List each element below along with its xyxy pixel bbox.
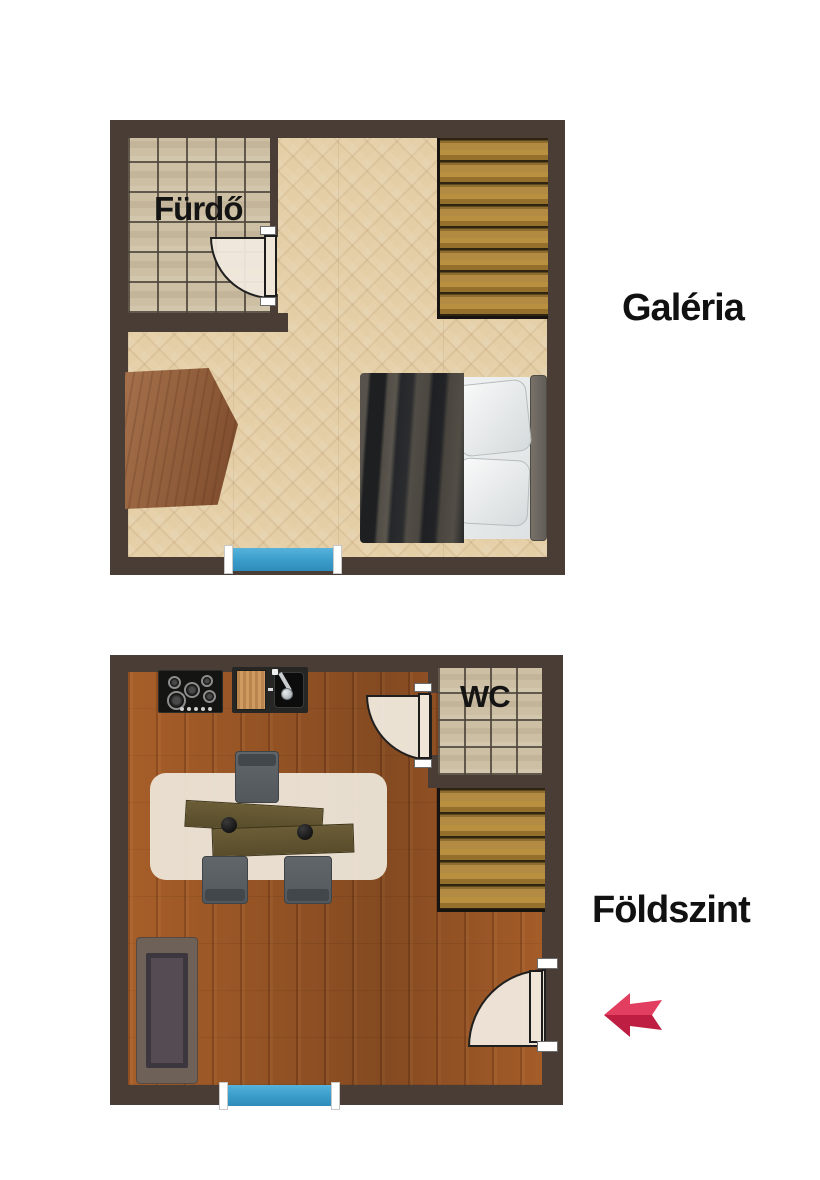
office-chair-bottom-right bbox=[284, 856, 332, 904]
double-bed bbox=[360, 373, 547, 545]
window-lower-frame-right bbox=[331, 1082, 340, 1110]
burner-icon bbox=[203, 690, 216, 703]
wc-door-hinge-bottom bbox=[414, 759, 432, 768]
faucet-head-icon bbox=[281, 688, 293, 700]
wc-door-hinge-top bbox=[414, 683, 432, 692]
bathroom-door-hinge-top bbox=[260, 226, 276, 235]
window-lower bbox=[227, 1085, 332, 1106]
chair-backrest bbox=[287, 889, 329, 901]
entry-arrow-icon bbox=[602, 990, 664, 1040]
office-chair-top bbox=[235, 751, 279, 803]
bed-blanket bbox=[360, 373, 464, 543]
kitchen-sink-unit bbox=[232, 667, 308, 713]
galeria-floor-label: Galéria bbox=[622, 287, 744, 330]
hob-knob-icon bbox=[187, 707, 191, 711]
hob-knob-icon bbox=[194, 707, 198, 711]
hob-knob-icon bbox=[201, 707, 205, 711]
sofa bbox=[136, 937, 198, 1084]
staircase-upper bbox=[437, 138, 548, 319]
bed-pillow-bottom bbox=[455, 457, 530, 527]
window-upper bbox=[232, 548, 334, 571]
chair-backrest bbox=[205, 889, 245, 901]
faucet-base-icon bbox=[272, 669, 278, 675]
foldszint-floor-label: Földszint bbox=[592, 889, 750, 932]
bathroom-wall-right-upper bbox=[270, 138, 278, 237]
bathroom-label: Fürdő bbox=[154, 190, 242, 228]
entry-door-leaf bbox=[529, 970, 543, 1043]
floor-plan-foldszint: WC bbox=[110, 655, 563, 1105]
staircase-lower bbox=[437, 788, 545, 912]
bathroom-wall-bottom bbox=[110, 313, 288, 332]
bathroom-door-leaf bbox=[264, 235, 277, 297]
window-lower-frame-left bbox=[219, 1082, 228, 1110]
gas-hob bbox=[158, 670, 223, 713]
floor-plan-galeria: Fürdő bbox=[110, 120, 565, 575]
desk-lamp-right-icon bbox=[297, 824, 313, 840]
burner-icon bbox=[184, 682, 200, 698]
bed-pillow-top bbox=[453, 378, 532, 457]
bathroom-door-hinge-bottom bbox=[260, 297, 276, 306]
entry-door-hinge-bottom bbox=[537, 1041, 558, 1052]
desk-lamp-left-icon bbox=[221, 817, 237, 833]
wc-wall-bottom bbox=[428, 775, 542, 788]
wc-door-leaf bbox=[418, 693, 431, 759]
entry-door-hinge-top bbox=[537, 958, 558, 969]
hob-knob-icon bbox=[208, 707, 212, 711]
unit-handle bbox=[268, 688, 273, 691]
office-chair-bottom-left bbox=[202, 856, 248, 904]
bed-headboard bbox=[530, 375, 547, 541]
chair-backrest bbox=[238, 754, 276, 766]
window-upper-frame-right bbox=[333, 545, 342, 574]
sofa-cushion bbox=[146, 953, 188, 1068]
window-upper-frame-left bbox=[224, 545, 233, 574]
cutting-board bbox=[236, 670, 266, 710]
burner-icon bbox=[201, 675, 213, 687]
burner-icon bbox=[168, 676, 181, 689]
hob-knob-icon bbox=[180, 707, 184, 711]
wc-label: WC bbox=[460, 679, 510, 715]
